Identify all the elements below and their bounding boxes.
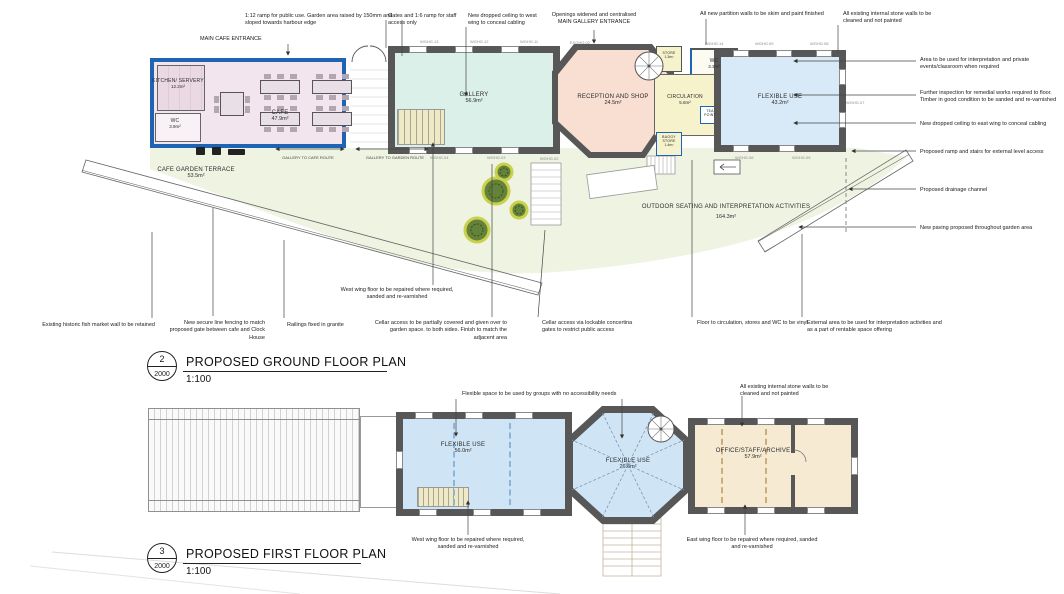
annotation: Proposed drainage channel (920, 187, 1060, 194)
hatched-wall-east (758, 150, 913, 252)
planter (228, 149, 245, 155)
room-label: WC 3.9m² (152, 118, 198, 129)
annotation: Further inspection for remedial works re… (920, 90, 1062, 105)
annotation: Floor to circulation, stores and WC to b… (697, 320, 809, 327)
cafe-block (150, 58, 346, 148)
window-tag: WGHG.02 (540, 156, 558, 161)
cellar-stair-east (647, 156, 675, 174)
drawing-number: 3 (148, 546, 176, 556)
annotation: Railings fixed in granite (287, 322, 379, 329)
exit-arrow (714, 160, 740, 174)
plan-scale: 1:100 (186, 566, 211, 577)
annotation: MAIN CAFE ENTRANCE (200, 36, 320, 43)
drawing-number: 2 (148, 354, 176, 364)
bench (196, 147, 205, 155)
window (839, 69, 846, 85)
window (455, 147, 473, 154)
window (757, 418, 775, 425)
room-label: GALLERY 56.9m² (424, 92, 524, 104)
tree (465, 218, 489, 242)
room-label: FLEXIBLE USE 43.2m² (730, 94, 830, 106)
drawing-number-bubble: 2 2000 (147, 351, 177, 381)
window-tag: WGHG.09 (755, 41, 773, 46)
window (757, 507, 775, 514)
window (779, 145, 795, 152)
ff-stair-outline (603, 518, 661, 576)
cafe-table (260, 80, 300, 94)
plan-title: PROPOSED FIRST FLOOR PLAN (186, 547, 386, 561)
window (807, 507, 825, 514)
ff-stair (417, 487, 469, 507)
plan-scale: 1:100 (186, 374, 211, 385)
divider (148, 558, 176, 559)
window (707, 507, 725, 514)
window-tag: WGHG.07 (846, 100, 864, 105)
partition-dashed (721, 429, 723, 503)
annotation: Proposed ramp and stairs for external le… (920, 149, 1060, 156)
garden-table (587, 165, 658, 198)
annotation-line: MAIN GALLERY ENTRANCE (558, 19, 630, 25)
window (419, 509, 437, 516)
window (409, 147, 427, 154)
store-room (656, 46, 682, 72)
annotation-line: Openings widened and centralised (552, 12, 636, 18)
gate-doors (352, 46, 386, 62)
window (851, 457, 858, 475)
room-label: KITCHEN/ SERVERY 12.2m² (152, 78, 204, 89)
hatched-wall-west (82, 160, 542, 295)
annotation: West wing floor to be repaired where req… (402, 537, 534, 552)
plan-title: PROPOSED GROUND FLOOR PLAN (186, 355, 406, 369)
annotation: West wing floor to be repaired where req… (333, 287, 461, 302)
room-label: OUTDOOR SEATING AND INTERPRETATION ACTIV… (596, 204, 856, 220)
window (523, 509, 541, 516)
window (501, 46, 519, 53)
room-label: OFFICE/STAFF/ARCHIVE 57.9m² (700, 448, 806, 460)
link-block (360, 416, 398, 508)
roof-plan (148, 408, 360, 512)
window-tag: WGHG.08 (810, 41, 828, 46)
annotation: Flexible space to be used by groups with… (462, 391, 642, 398)
sheet-number: 2000 (148, 371, 176, 378)
room-label: WC 3.3m² (692, 58, 736, 69)
cafe-table (312, 80, 352, 94)
title-rule (183, 563, 361, 564)
annotation: East wing floor to be repaired where req… (686, 537, 818, 552)
room-label: BUGGY STORE 1.4m² (656, 135, 682, 147)
internal-wall (791, 475, 795, 507)
window (396, 451, 403, 469)
window (415, 412, 433, 419)
window-tag: WGHG.06 (735, 155, 753, 160)
annotation: All existing internal stone walls to be … (843, 11, 951, 26)
partition-dashed (453, 423, 455, 505)
route-label: GALLERY TO CAFE ROUTE (268, 155, 348, 160)
window-tag: WGHG.11 (520, 39, 538, 44)
gallery-stair (397, 109, 445, 145)
annotation: New dropped ceiling to east wing to conc… (920, 121, 1060, 128)
cafe-table (312, 112, 352, 126)
window (501, 147, 519, 154)
room-label: RECEPTION AND SHOP 24.5m² (562, 94, 664, 106)
annotation: Cellar access to be partially covered an… (372, 320, 507, 342)
tree (496, 164, 512, 180)
annotation: Gates and 1:6 ramp for staff access only (388, 13, 463, 28)
room-label: CAFE 47.9m² (250, 110, 310, 122)
drawing-sheet: KITCHEN/ SERVERY 12.2m² WC 3.9m² CAFE 47… (0, 0, 1064, 594)
annotation: Cellar access via lockable concertina ga… (542, 320, 634, 335)
route-label: GALLERY TO GARDEN ROUTE (352, 155, 438, 160)
partition-dashed (509, 423, 511, 505)
window (409, 46, 427, 53)
window (816, 50, 832, 57)
window (515, 412, 533, 419)
ff-west-wing (396, 412, 572, 516)
window (776, 50, 792, 57)
title-rule (183, 371, 387, 372)
room-label: TEA POINT (700, 109, 720, 117)
cafe-table (220, 92, 244, 116)
partition-dashed (765, 429, 767, 503)
window-tag: EXGHG.02 (570, 40, 590, 45)
window (839, 112, 846, 128)
window-tag: WGHG.14 (705, 41, 723, 46)
staff-ramp-lines (350, 70, 388, 142)
window (733, 50, 749, 57)
ff-east-wing (688, 418, 858, 514)
annotation: New dropped ceiling to west wing to conc… (468, 13, 548, 28)
drawing-number-bubble: 3 2000 (147, 543, 177, 573)
sheet-number: 2000 (148, 563, 176, 570)
room-label: STORE 1.3m² (657, 51, 681, 59)
roof-eaves (149, 419, 359, 501)
window-tag: WGHG.12 (470, 39, 488, 44)
annotation: Openings widened and centralised MAIN GA… (538, 12, 650, 27)
bench (212, 147, 221, 155)
window (707, 418, 725, 425)
window (473, 509, 491, 516)
room-label: CAFE GARDEN TERRACE 53.5m² (138, 167, 254, 179)
tree (511, 202, 527, 218)
annotation: 1:12 ramp for public use. Garden area ra… (245, 13, 405, 28)
annotation: Existing historic fish market wall to be… (15, 322, 155, 329)
window-tag: WGHG.13 (420, 39, 438, 44)
room-label: FLEXIBLE USE 56.0m² (408, 442, 518, 454)
annotation: All existing internal stone walls to be … (740, 384, 848, 399)
room-label: FLEXIBLE USE 26.6m² (578, 458, 678, 470)
annotation: Area to be used for interpretation and p… (920, 57, 1060, 72)
tree (483, 178, 509, 204)
window-tag: WGHG.05 (792, 155, 810, 160)
window (465, 412, 483, 419)
window (455, 46, 473, 53)
annotation: New paving proposed throughout garden ar… (920, 225, 1060, 232)
window (807, 418, 825, 425)
cellar-stair-west (531, 163, 561, 225)
window-tag: WGHG.03 (487, 155, 505, 160)
annotation: New secure line fencing to match propose… (160, 320, 265, 342)
annotation: External area to be used for interpretat… (807, 320, 945, 335)
room-label: CIRCULATION 5.6m² (654, 94, 716, 105)
divider (148, 366, 176, 367)
window (733, 145, 749, 152)
